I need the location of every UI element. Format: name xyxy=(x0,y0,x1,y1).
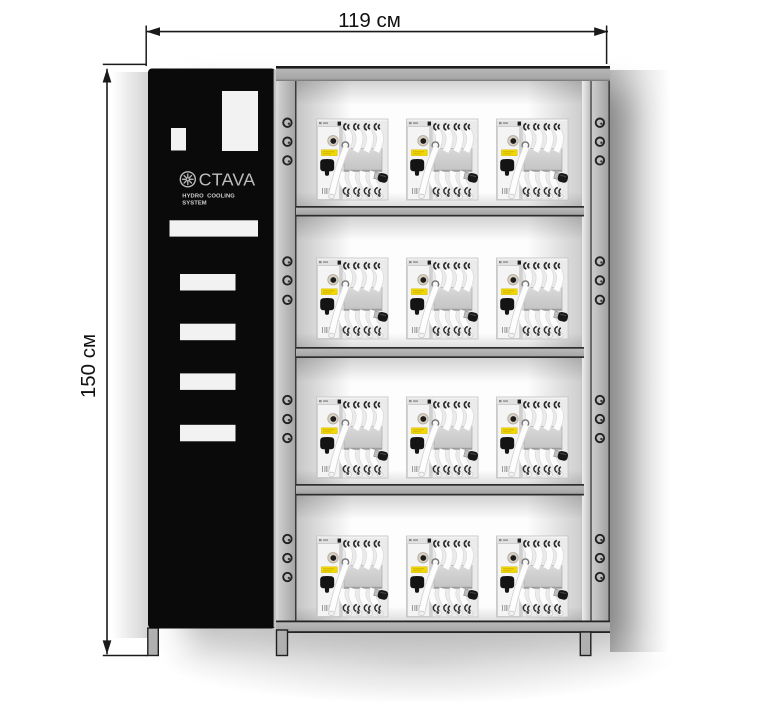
svg-text:150 см: 150 см xyxy=(77,334,100,398)
svg-text:SYSTEM: SYSTEM xyxy=(182,201,207,207)
svg-text:HYDRO COOLING: HYDRO COOLING xyxy=(182,193,235,199)
svg-text:CTAVA: CTAVA xyxy=(199,170,256,190)
svg-text:119 см: 119 см xyxy=(338,9,401,32)
